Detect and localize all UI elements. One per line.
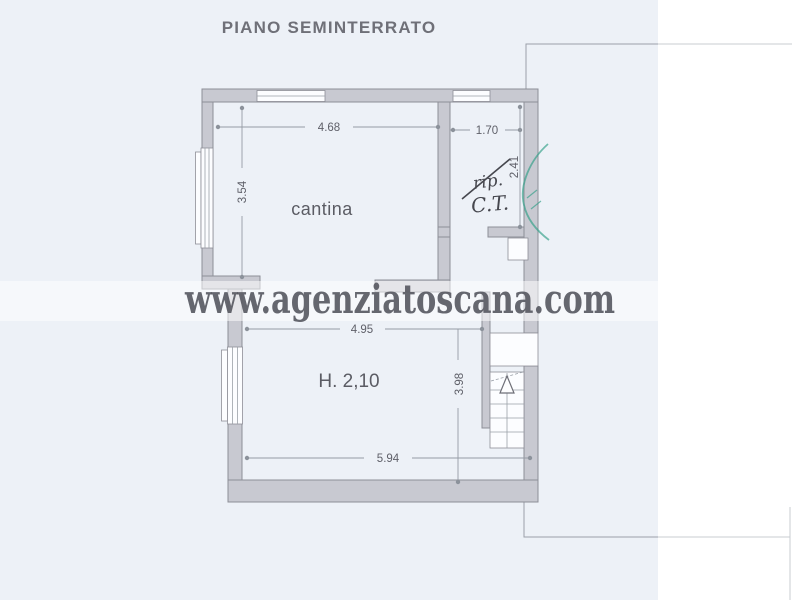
dim-ct-width: 1.70 (476, 125, 498, 137)
dim-ct-depth: 2.41 (509, 156, 521, 178)
watermark-text: www.agenziatoscana.com (184, 276, 615, 323)
dim-lower-width-bottom: 5.94 (377, 453, 400, 465)
room-label-cantina: cantina (291, 199, 353, 219)
staircase (490, 372, 524, 448)
dim-lower-width: 4.95 (351, 324, 373, 336)
dim-cantina-depth: 3.54 (237, 180, 249, 203)
scanned-floorplan-page: PIANO SEMINTERRATO (0, 0, 800, 600)
shaft (508, 238, 528, 260)
floor-title: PIANO SEMINTERRATO (222, 18, 437, 37)
room-label-ct: C.T. (470, 190, 510, 217)
dim-lower-depth: 3.98 (454, 373, 466, 395)
stair-landing-opening (490, 333, 538, 366)
dim-cantina-width: 4.68 (318, 122, 340, 134)
ceiling-height-label: H. 2,10 (318, 371, 379, 392)
